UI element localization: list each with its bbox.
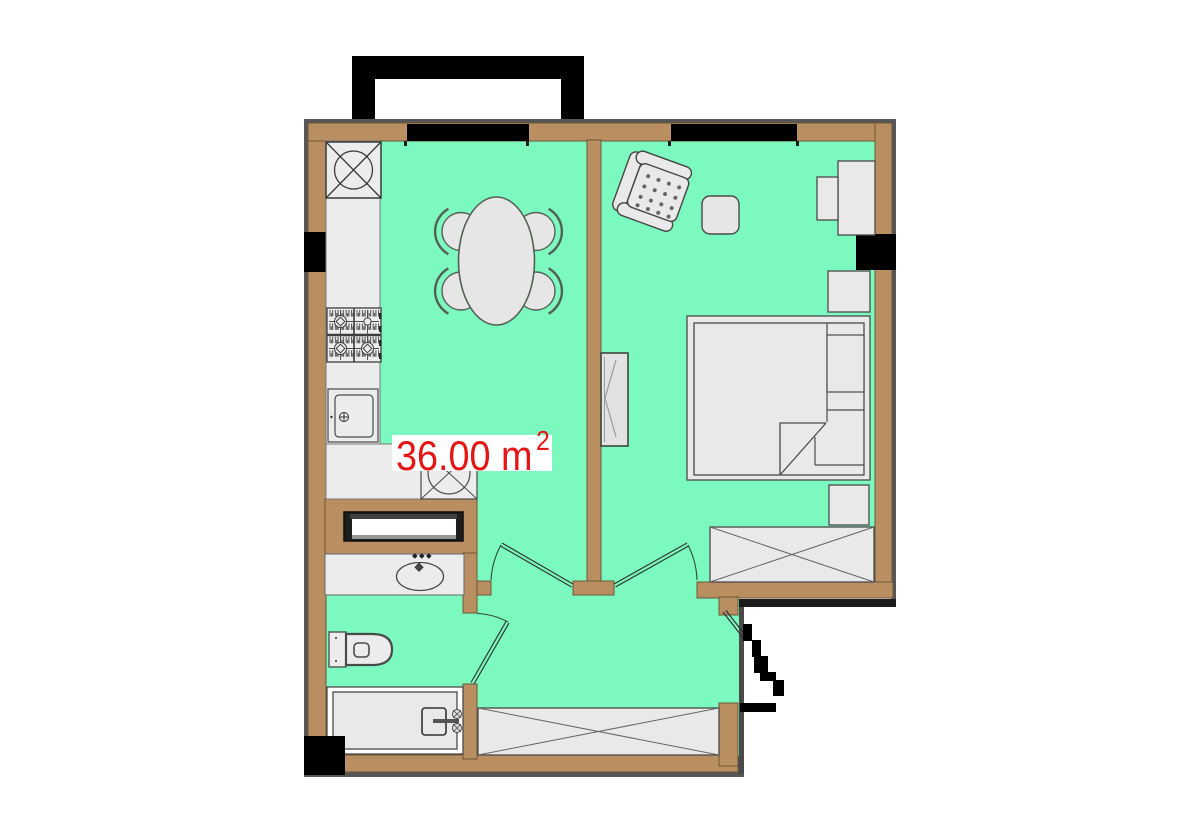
svg-text:36.00 m: 36.00 m <box>396 433 533 479</box>
svg-text:2: 2 <box>536 425 550 457</box>
